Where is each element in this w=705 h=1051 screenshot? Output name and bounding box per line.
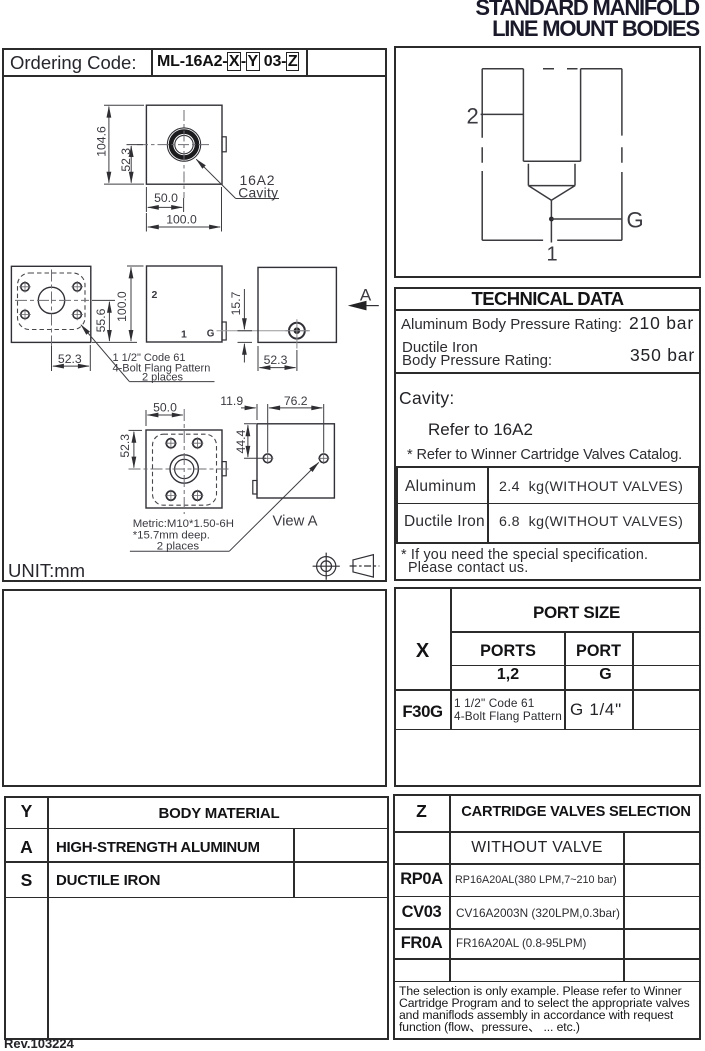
svg-text:50.0: 50.0 xyxy=(153,400,177,414)
svg-text:G: G xyxy=(207,328,215,339)
svg-text:2 places: 2 places xyxy=(142,372,183,384)
svg-text:100.0: 100.0 xyxy=(115,291,129,322)
svg-text:50.0: 50.0 xyxy=(154,191,178,205)
svg-text:52.3: 52.3 xyxy=(264,353,288,367)
svg-text:52.3: 52.3 xyxy=(118,434,132,458)
svg-text:52.3: 52.3 xyxy=(58,352,82,366)
svg-text:View A: View A xyxy=(273,514,318,530)
svg-text:76.2: 76.2 xyxy=(284,394,308,408)
svg-text:100.0: 100.0 xyxy=(166,212,197,226)
svg-text:A: A xyxy=(360,286,372,305)
svg-text:104.6: 104.6 xyxy=(95,126,109,157)
svg-text:55.6: 55.6 xyxy=(94,308,108,332)
svg-text:2 places: 2 places xyxy=(157,540,200,552)
svg-text:Cavity: Cavity xyxy=(238,185,278,200)
svg-text:Metric:M10*1.50-6H: Metric:M10*1.50-6H xyxy=(133,518,234,530)
svg-text:2: 2 xyxy=(152,289,158,301)
svg-text:52.3: 52.3 xyxy=(119,148,133,172)
svg-text:15.7: 15.7 xyxy=(229,291,243,315)
svg-text:44.4: 44.4 xyxy=(234,430,248,454)
svg-text:11.9: 11.9 xyxy=(220,394,243,408)
svg-text:1: 1 xyxy=(181,329,187,341)
